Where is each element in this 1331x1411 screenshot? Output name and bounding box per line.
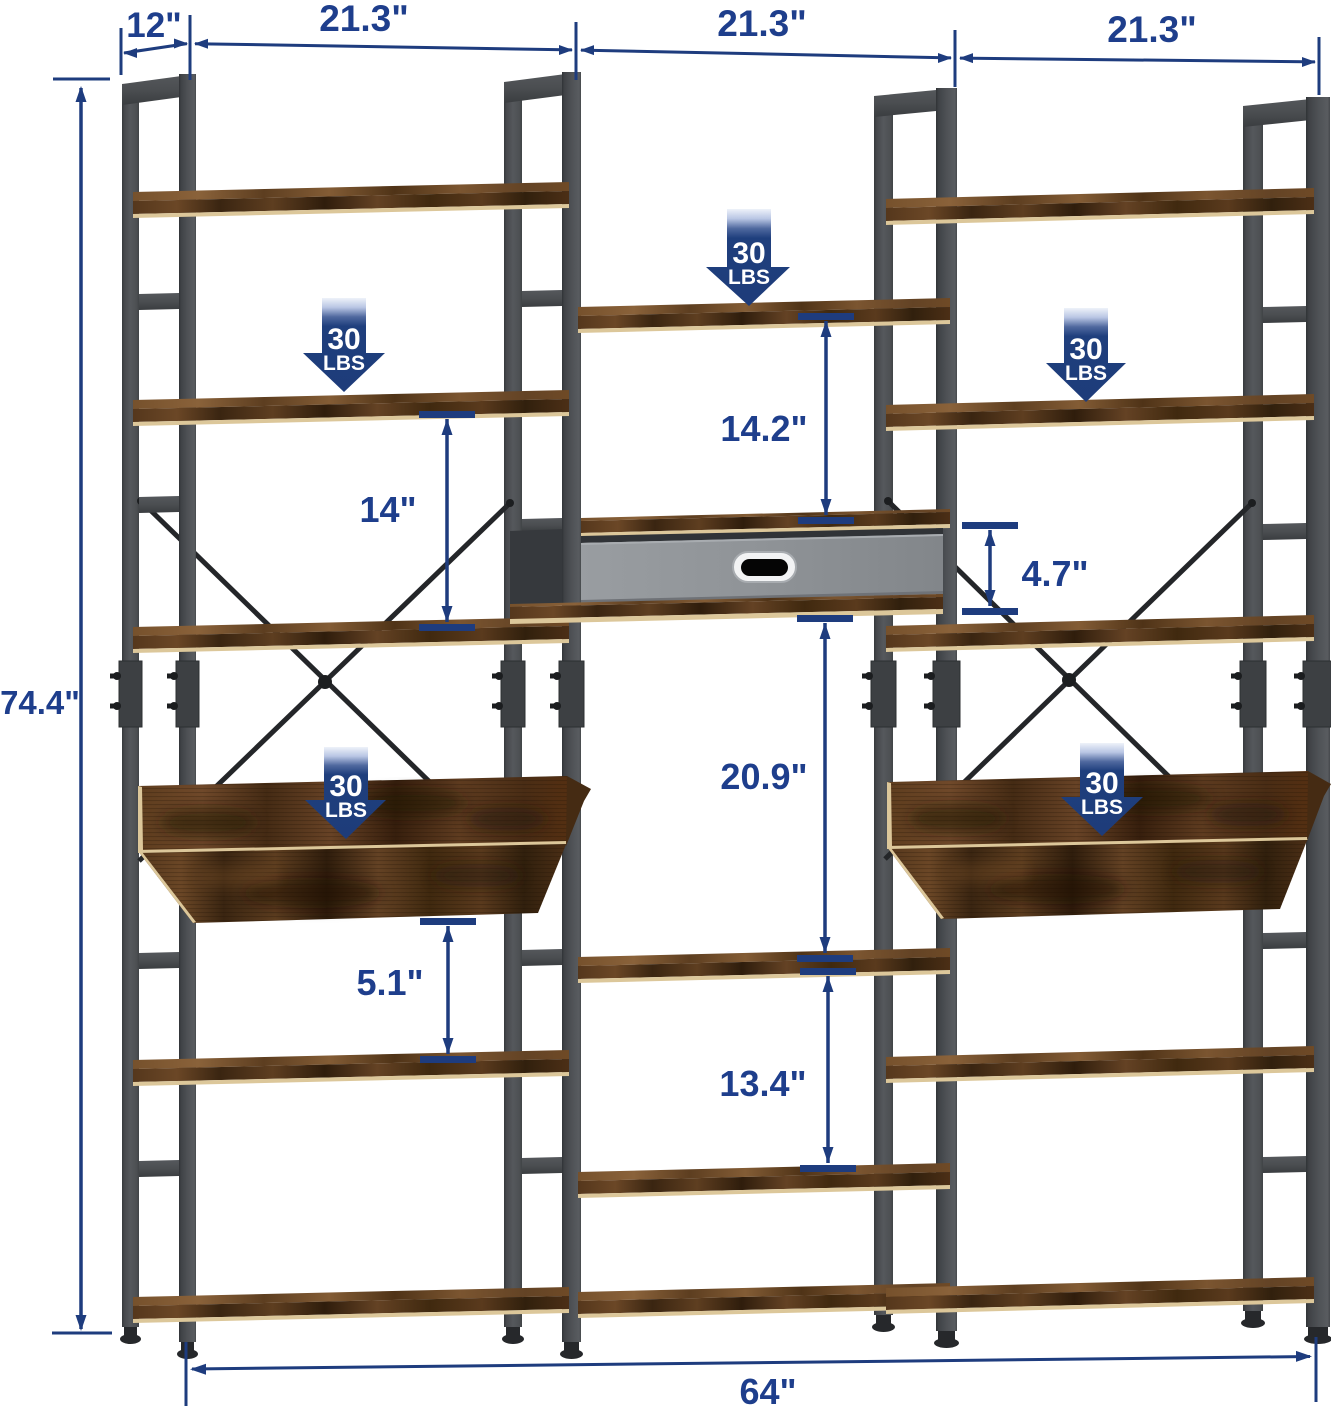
svg-text:4.7": 4.7" — [1021, 553, 1088, 594]
svg-text:13.4": 13.4" — [719, 1063, 806, 1104]
svg-text:14.2": 14.2" — [720, 408, 807, 449]
svg-text:5.1": 5.1" — [356, 962, 423, 1003]
svg-text:64": 64" — [739, 1371, 796, 1411]
svg-text:21.3": 21.3" — [319, 0, 409, 39]
svg-text:74.4": 74.4" — [0, 684, 80, 721]
svg-text:LBS: LBS — [728, 266, 770, 289]
svg-text:LBS: LBS — [325, 799, 367, 822]
svg-text:LBS: LBS — [1065, 362, 1107, 385]
svg-text:LBS: LBS — [323, 352, 365, 375]
svg-text:21.3": 21.3" — [717, 3, 807, 44]
svg-text:12": 12" — [126, 6, 182, 45]
svg-text:14": 14" — [359, 489, 416, 530]
svg-text:LBS: LBS — [1081, 796, 1123, 819]
svg-text:21.3": 21.3" — [1107, 9, 1197, 50]
svg-text:20.9": 20.9" — [720, 756, 807, 797]
